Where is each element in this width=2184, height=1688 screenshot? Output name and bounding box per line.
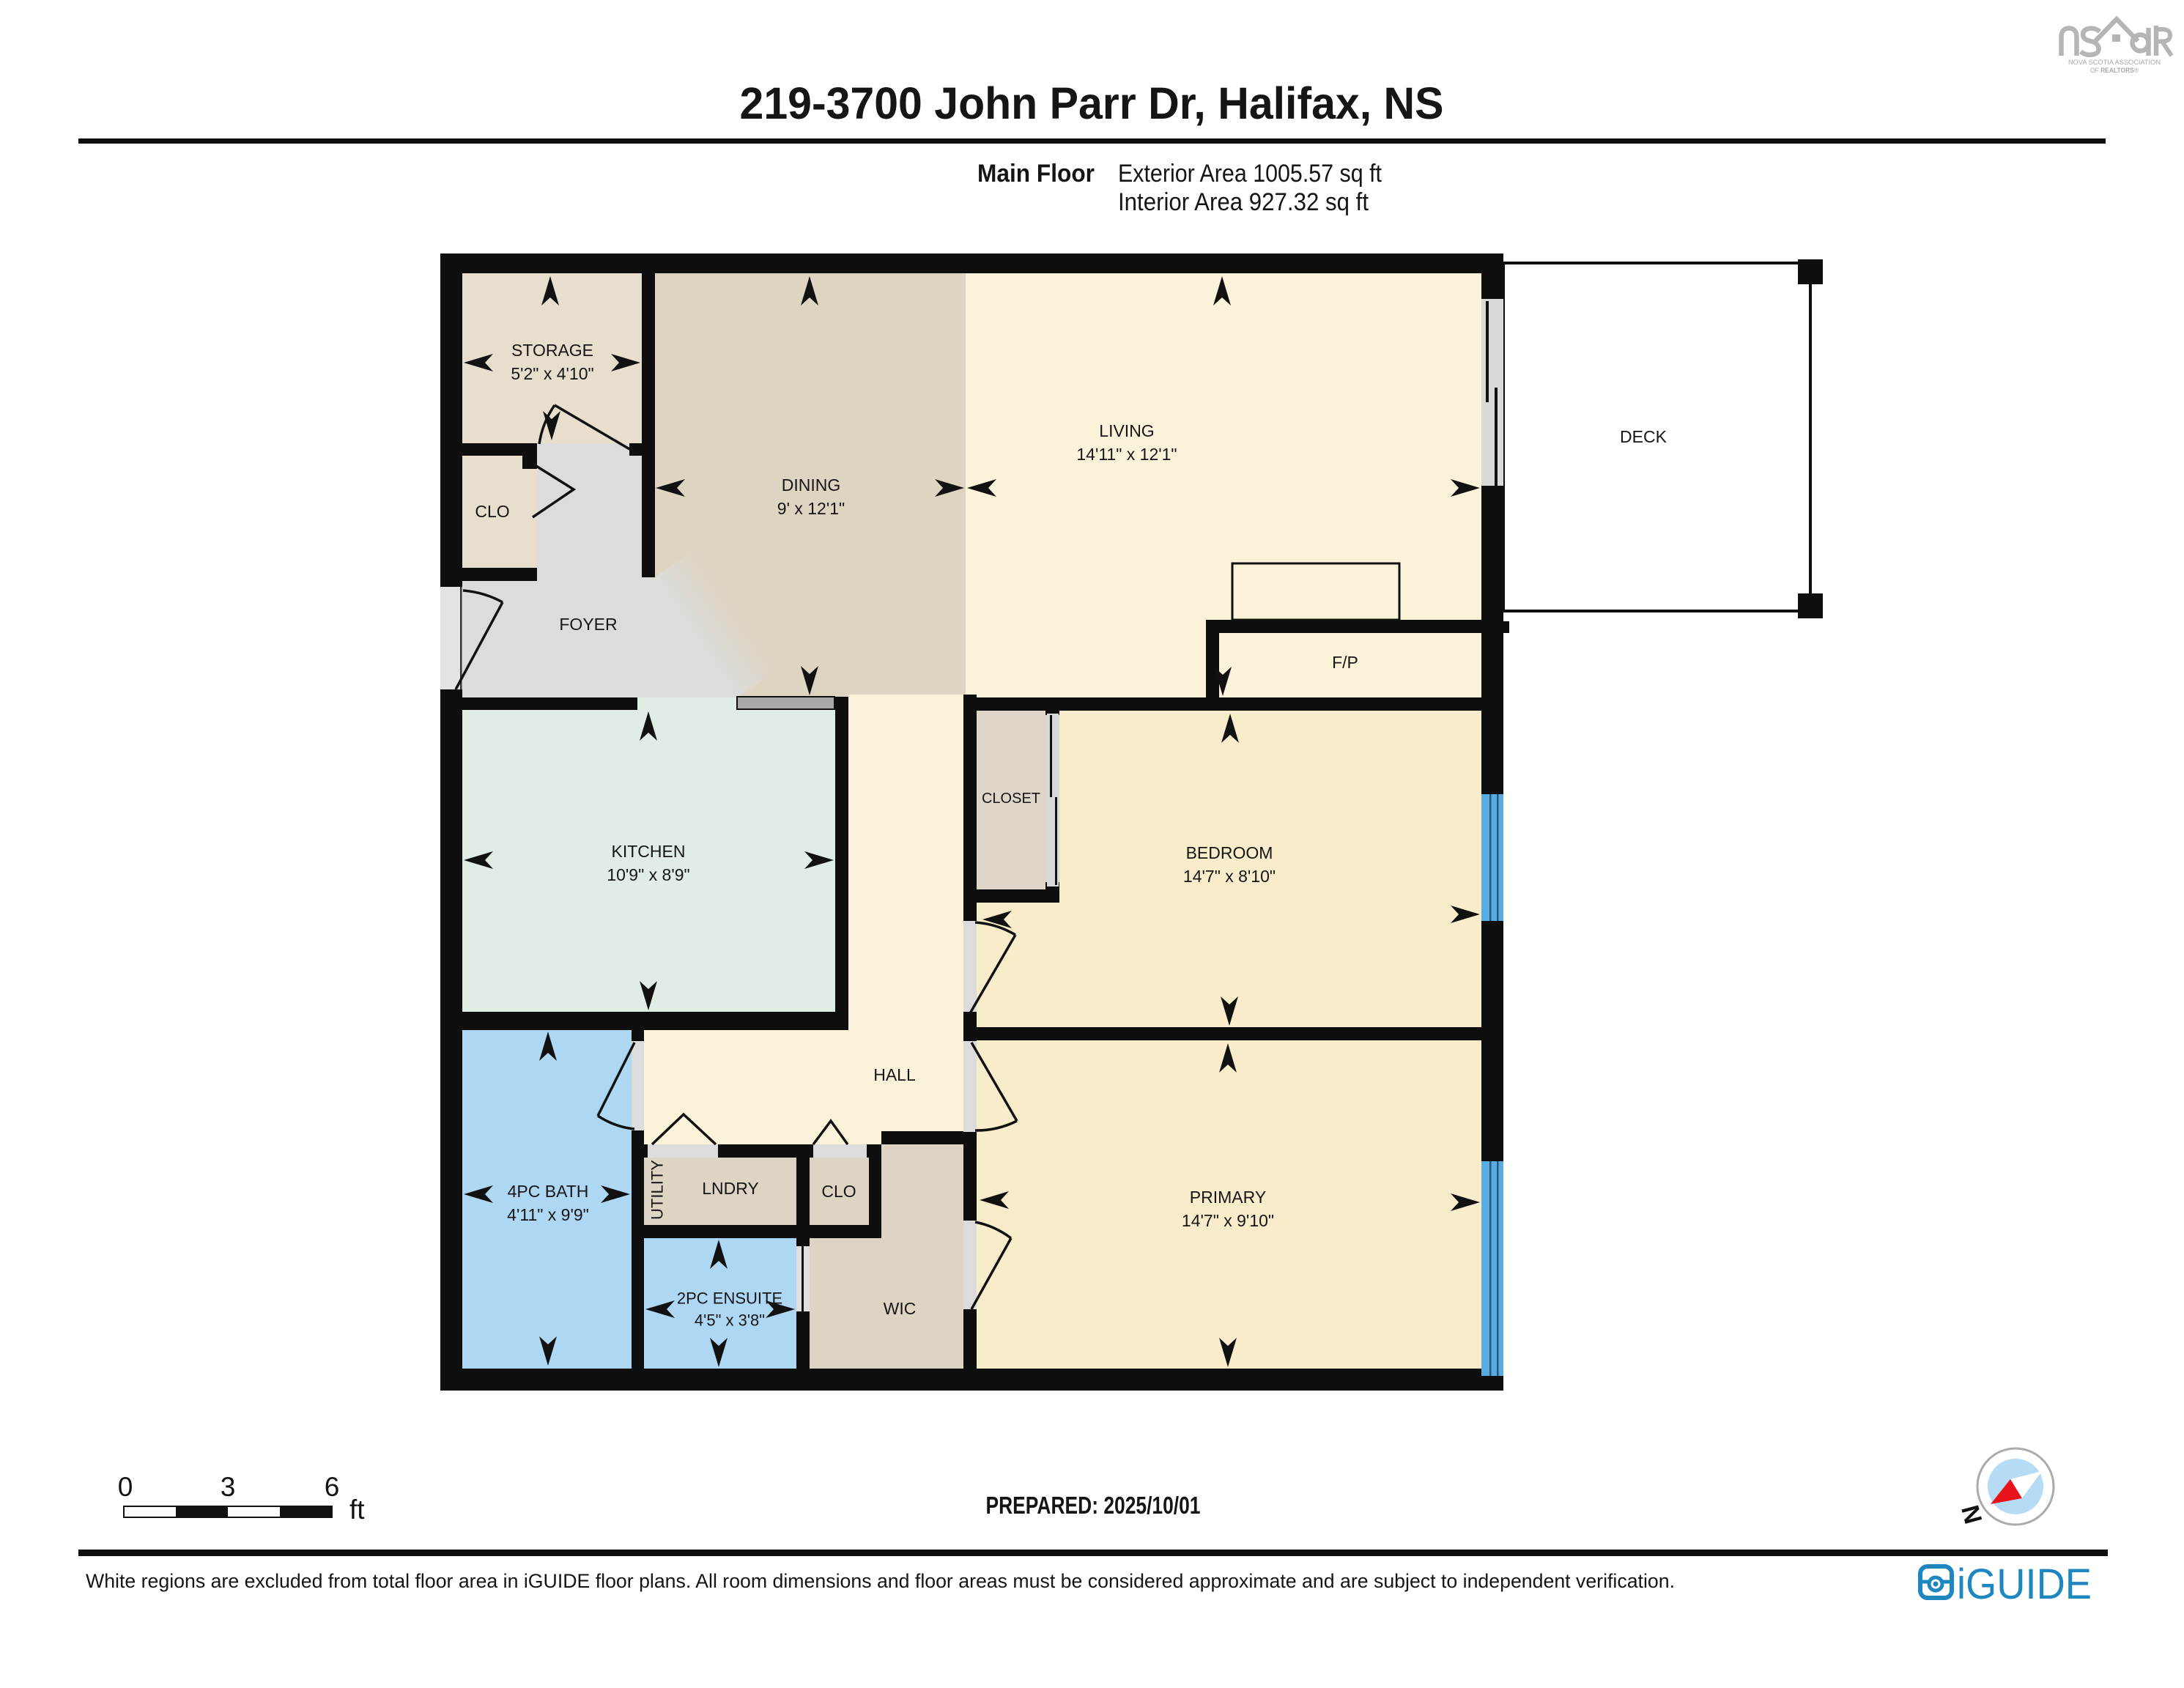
- svg-text:iGUIDE: iGUIDE: [1957, 1561, 2092, 1608]
- svg-text:HALL: HALL: [873, 1065, 916, 1084]
- svg-text:4'11" x 9'9": 4'11" x 9'9": [507, 1205, 589, 1224]
- svg-text:2PC ENSUITE: 2PC ENSUITE: [677, 1289, 782, 1308]
- svg-text:BEDROOM: BEDROOM: [1186, 843, 1273, 862]
- svg-text:CLO: CLO: [475, 502, 509, 521]
- svg-text:CLO: CLO: [821, 1182, 856, 1201]
- svg-text:WIC: WIC: [884, 1299, 917, 1318]
- svg-text:F/P: F/P: [1332, 653, 1358, 672]
- svg-text:OF REALTORS®: OF REALTORS®: [2090, 67, 2139, 74]
- svg-text:14'11" x 12'1": 14'11" x 12'1": [1076, 445, 1177, 464]
- svg-text:0: 0: [118, 1472, 133, 1502]
- svg-text:PREPARED: 2025/10/01: PREPARED: 2025/10/01: [986, 1492, 1201, 1519]
- svg-text:PRIMARY: PRIMARY: [1190, 1188, 1266, 1207]
- svg-text:ft: ft: [349, 1495, 365, 1525]
- svg-text:FOYER: FOYER: [559, 615, 617, 634]
- svg-text:14'7" x 8'10": 14'7" x 8'10": [1183, 867, 1276, 886]
- svg-text:Main Floor: Main Floor: [977, 160, 1095, 188]
- svg-text:STORAGE: STORAGE: [511, 341, 593, 360]
- svg-text:LNDRY: LNDRY: [702, 1179, 759, 1198]
- svg-text:5'2" x 4'10": 5'2" x 4'10": [511, 364, 593, 383]
- svg-text:White regions are excluded fro: White regions are excluded from total fl…: [86, 1570, 1675, 1592]
- svg-text:NOVA SCOTIA ASSOCIATION: NOVA SCOTIA ASSOCIATION: [2068, 59, 2161, 67]
- svg-text:4'5" x 3'8": 4'5" x 3'8": [695, 1311, 765, 1330]
- svg-text:219-3700 John Parr Dr, Halifax: 219-3700 John Parr Dr, Halifax, NS: [740, 78, 1444, 128]
- svg-text:Exterior Area 1005.57 sq ft: Exterior Area 1005.57 sq ft: [1118, 160, 1382, 188]
- svg-text:4PC BATH: 4PC BATH: [508, 1182, 589, 1201]
- svg-text:10'9" x 8'9": 10'9" x 8'9": [607, 865, 689, 884]
- svg-text:LIVING: LIVING: [1099, 421, 1154, 440]
- svg-text:DECK: DECK: [1620, 427, 1667, 446]
- svg-text:14'7" x 9'10": 14'7" x 9'10": [1182, 1211, 1274, 1230]
- svg-text:CLOSET: CLOSET: [982, 791, 1040, 807]
- svg-text:6: 6: [325, 1472, 340, 1502]
- svg-text:DINING: DINING: [782, 475, 841, 495]
- svg-text:Interior Area 927.32 sq ft: Interior Area 927.32 sq ft: [1118, 188, 1369, 216]
- svg-text:3: 3: [221, 1472, 236, 1502]
- svg-text:UTILITY: UTILITY: [648, 1160, 667, 1220]
- svg-text:9' x 12'1": 9' x 12'1": [777, 499, 845, 518]
- svg-text:KITCHEN: KITCHEN: [612, 842, 686, 861]
